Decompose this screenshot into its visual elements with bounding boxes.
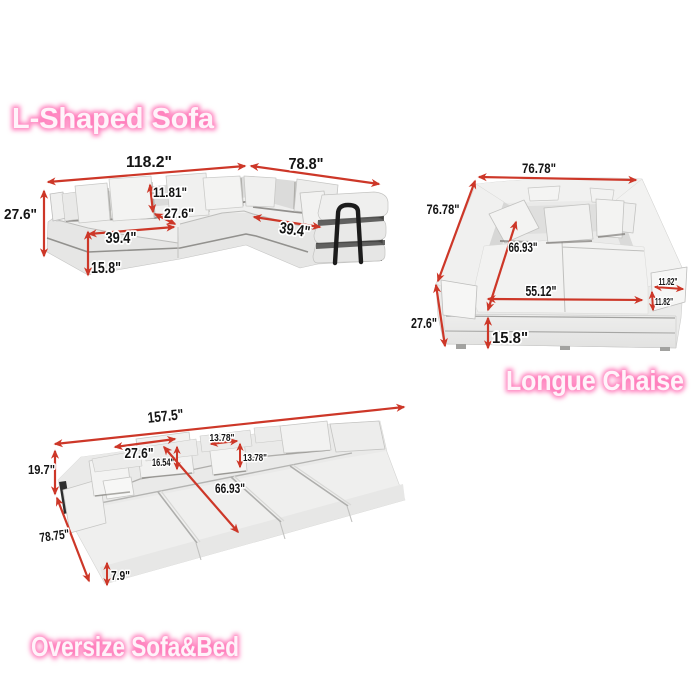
svg-text:Longue Chaise: Longue Chaise: [506, 365, 684, 396]
svg-text:27.6": 27.6": [411, 315, 437, 332]
svg-text:Oversize Sofa&Bed: Oversize Sofa&Bed: [31, 631, 239, 662]
svg-text:13.78": 13.78": [243, 452, 267, 464]
svg-text:13.78": 13.78": [210, 432, 235, 444]
svg-text:66.93": 66.93": [509, 240, 538, 255]
svg-text:118.2": 118.2": [126, 154, 172, 171]
svg-text:27.6": 27.6": [4, 206, 37, 223]
svg-text:76.78": 76.78": [427, 201, 460, 217]
svg-text:66.93": 66.93": [215, 481, 245, 496]
svg-text:78.8": 78.8": [289, 156, 324, 173]
svg-text:27.6": 27.6": [164, 205, 194, 221]
svg-text:39.4": 39.4": [106, 230, 137, 247]
svg-text:78.75": 78.75": [38, 526, 70, 545]
svg-text:157.5": 157.5": [147, 406, 185, 427]
svg-text:7.9": 7.9": [111, 568, 130, 583]
svg-text:55.12": 55.12": [526, 283, 557, 300]
svg-text:L-Shaped Sofa: L-Shaped Sofa: [12, 103, 215, 135]
svg-text:15.8": 15.8": [492, 330, 528, 347]
svg-text:19.7": 19.7": [28, 462, 55, 477]
svg-text:15.8": 15.8": [91, 260, 121, 277]
svg-text:11.82": 11.82": [659, 277, 678, 288]
svg-text:16.54": 16.54": [152, 457, 174, 469]
svg-text:76.78": 76.78": [522, 160, 556, 176]
svg-text:11.82": 11.82": [655, 297, 673, 308]
svg-text:27.6": 27.6": [125, 445, 154, 462]
svg-text:11.81": 11.81": [153, 184, 187, 200]
